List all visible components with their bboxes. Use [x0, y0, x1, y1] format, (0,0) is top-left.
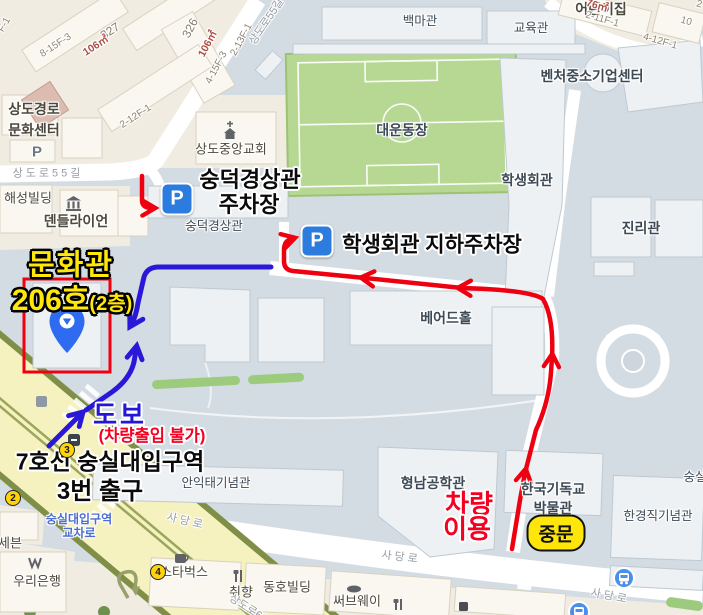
poi-box-icon: [36, 396, 47, 407]
subway-exit-3[interactable]: 3: [59, 442, 75, 458]
venue-room: 206호: [12, 284, 90, 317]
parking2-label: 학생회관 지하주차장: [342, 235, 522, 256]
poi-dot-4[interactable]: 4: [150, 564, 166, 580]
venue-room-line: 206호(2층): [12, 286, 133, 316]
walk-label: 도보: [93, 402, 147, 428]
bus-stop-icon[interactable]: [614, 568, 634, 588]
subway-exit-label: 3번 출구: [57, 480, 143, 504]
parking-icon-student-hall[interactable]: P: [301, 225, 334, 258]
sandwich-icon: [347, 586, 361, 593]
parking1-label-line1: 숭덕경상관: [199, 169, 300, 191]
drive-label-2: 이용: [443, 516, 491, 542]
subway-line-label: 7호선 숭실대입구역: [16, 451, 204, 474]
walk-note: (차량출입 불가): [99, 428, 206, 445]
soccer-field: [286, 50, 518, 196]
subway-exit-2[interactable]: 2: [5, 490, 21, 506]
parking1-label-line2: 주차장: [219, 194, 280, 216]
map-canvas[interactable]: 백마관교육관어린이집벤처중소기업센터학생회관진리관대운동장숭덕경상관베어드홀안익…: [0, 0, 703, 615]
store-icon: [459, 602, 468, 611]
venue-floor: (2층): [89, 293, 132, 315]
venue-name: 문화관: [28, 252, 114, 281]
gate-badge[interactable]: 중문: [527, 515, 586, 552]
bus-stop-icon[interactable]: [569, 602, 589, 615]
parking-icon-sungdeok[interactable]: P: [161, 183, 194, 216]
